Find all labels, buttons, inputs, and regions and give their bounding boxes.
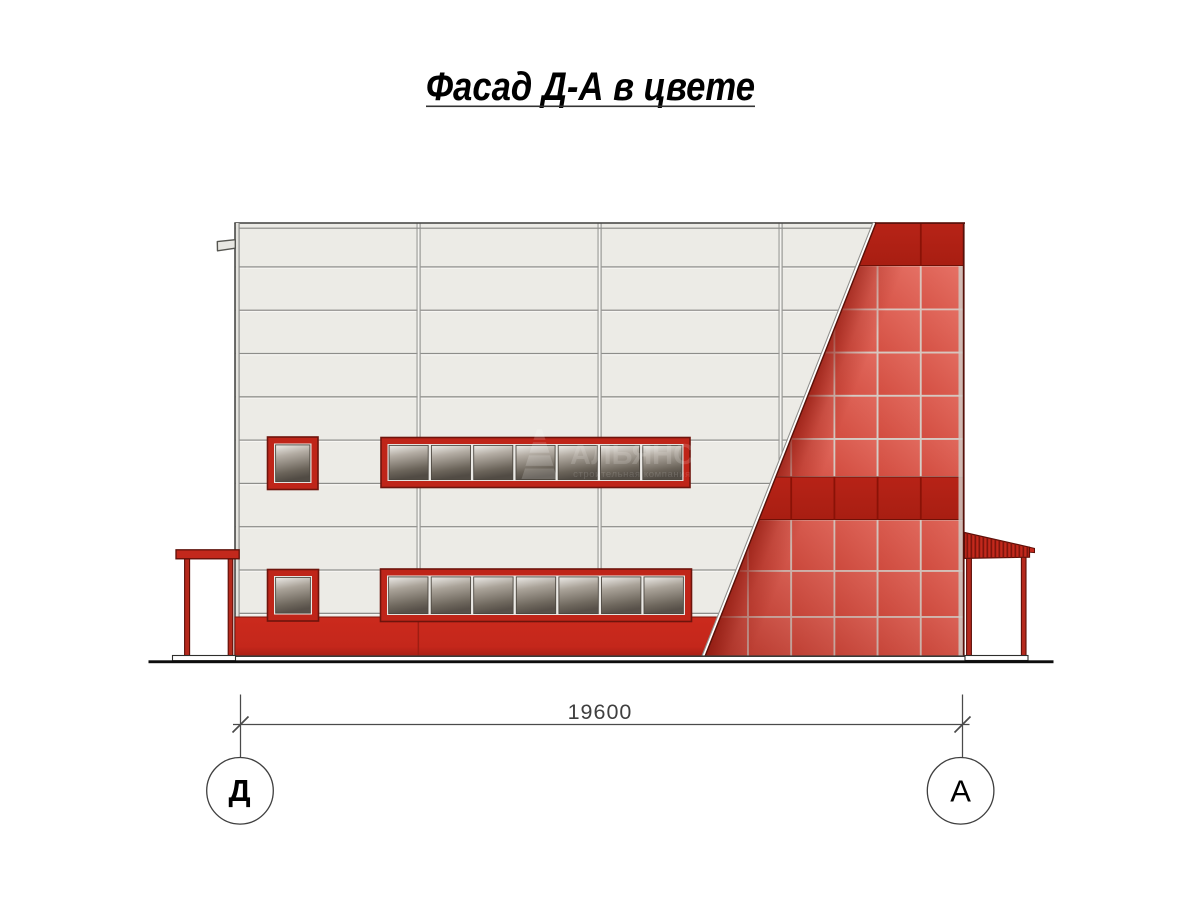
svg-text:19600: 19600: [568, 700, 633, 724]
svg-text:Д: Д: [228, 773, 250, 808]
svg-text:АЛЬЯНС: АЛЬЯНС: [570, 439, 694, 471]
svg-text:Фасад Д-А в цвете: Фасад Д-А в цвете: [426, 65, 755, 109]
svg-text:А: А: [950, 774, 971, 809]
svg-text:строительная компания: строительная компания: [573, 469, 691, 480]
